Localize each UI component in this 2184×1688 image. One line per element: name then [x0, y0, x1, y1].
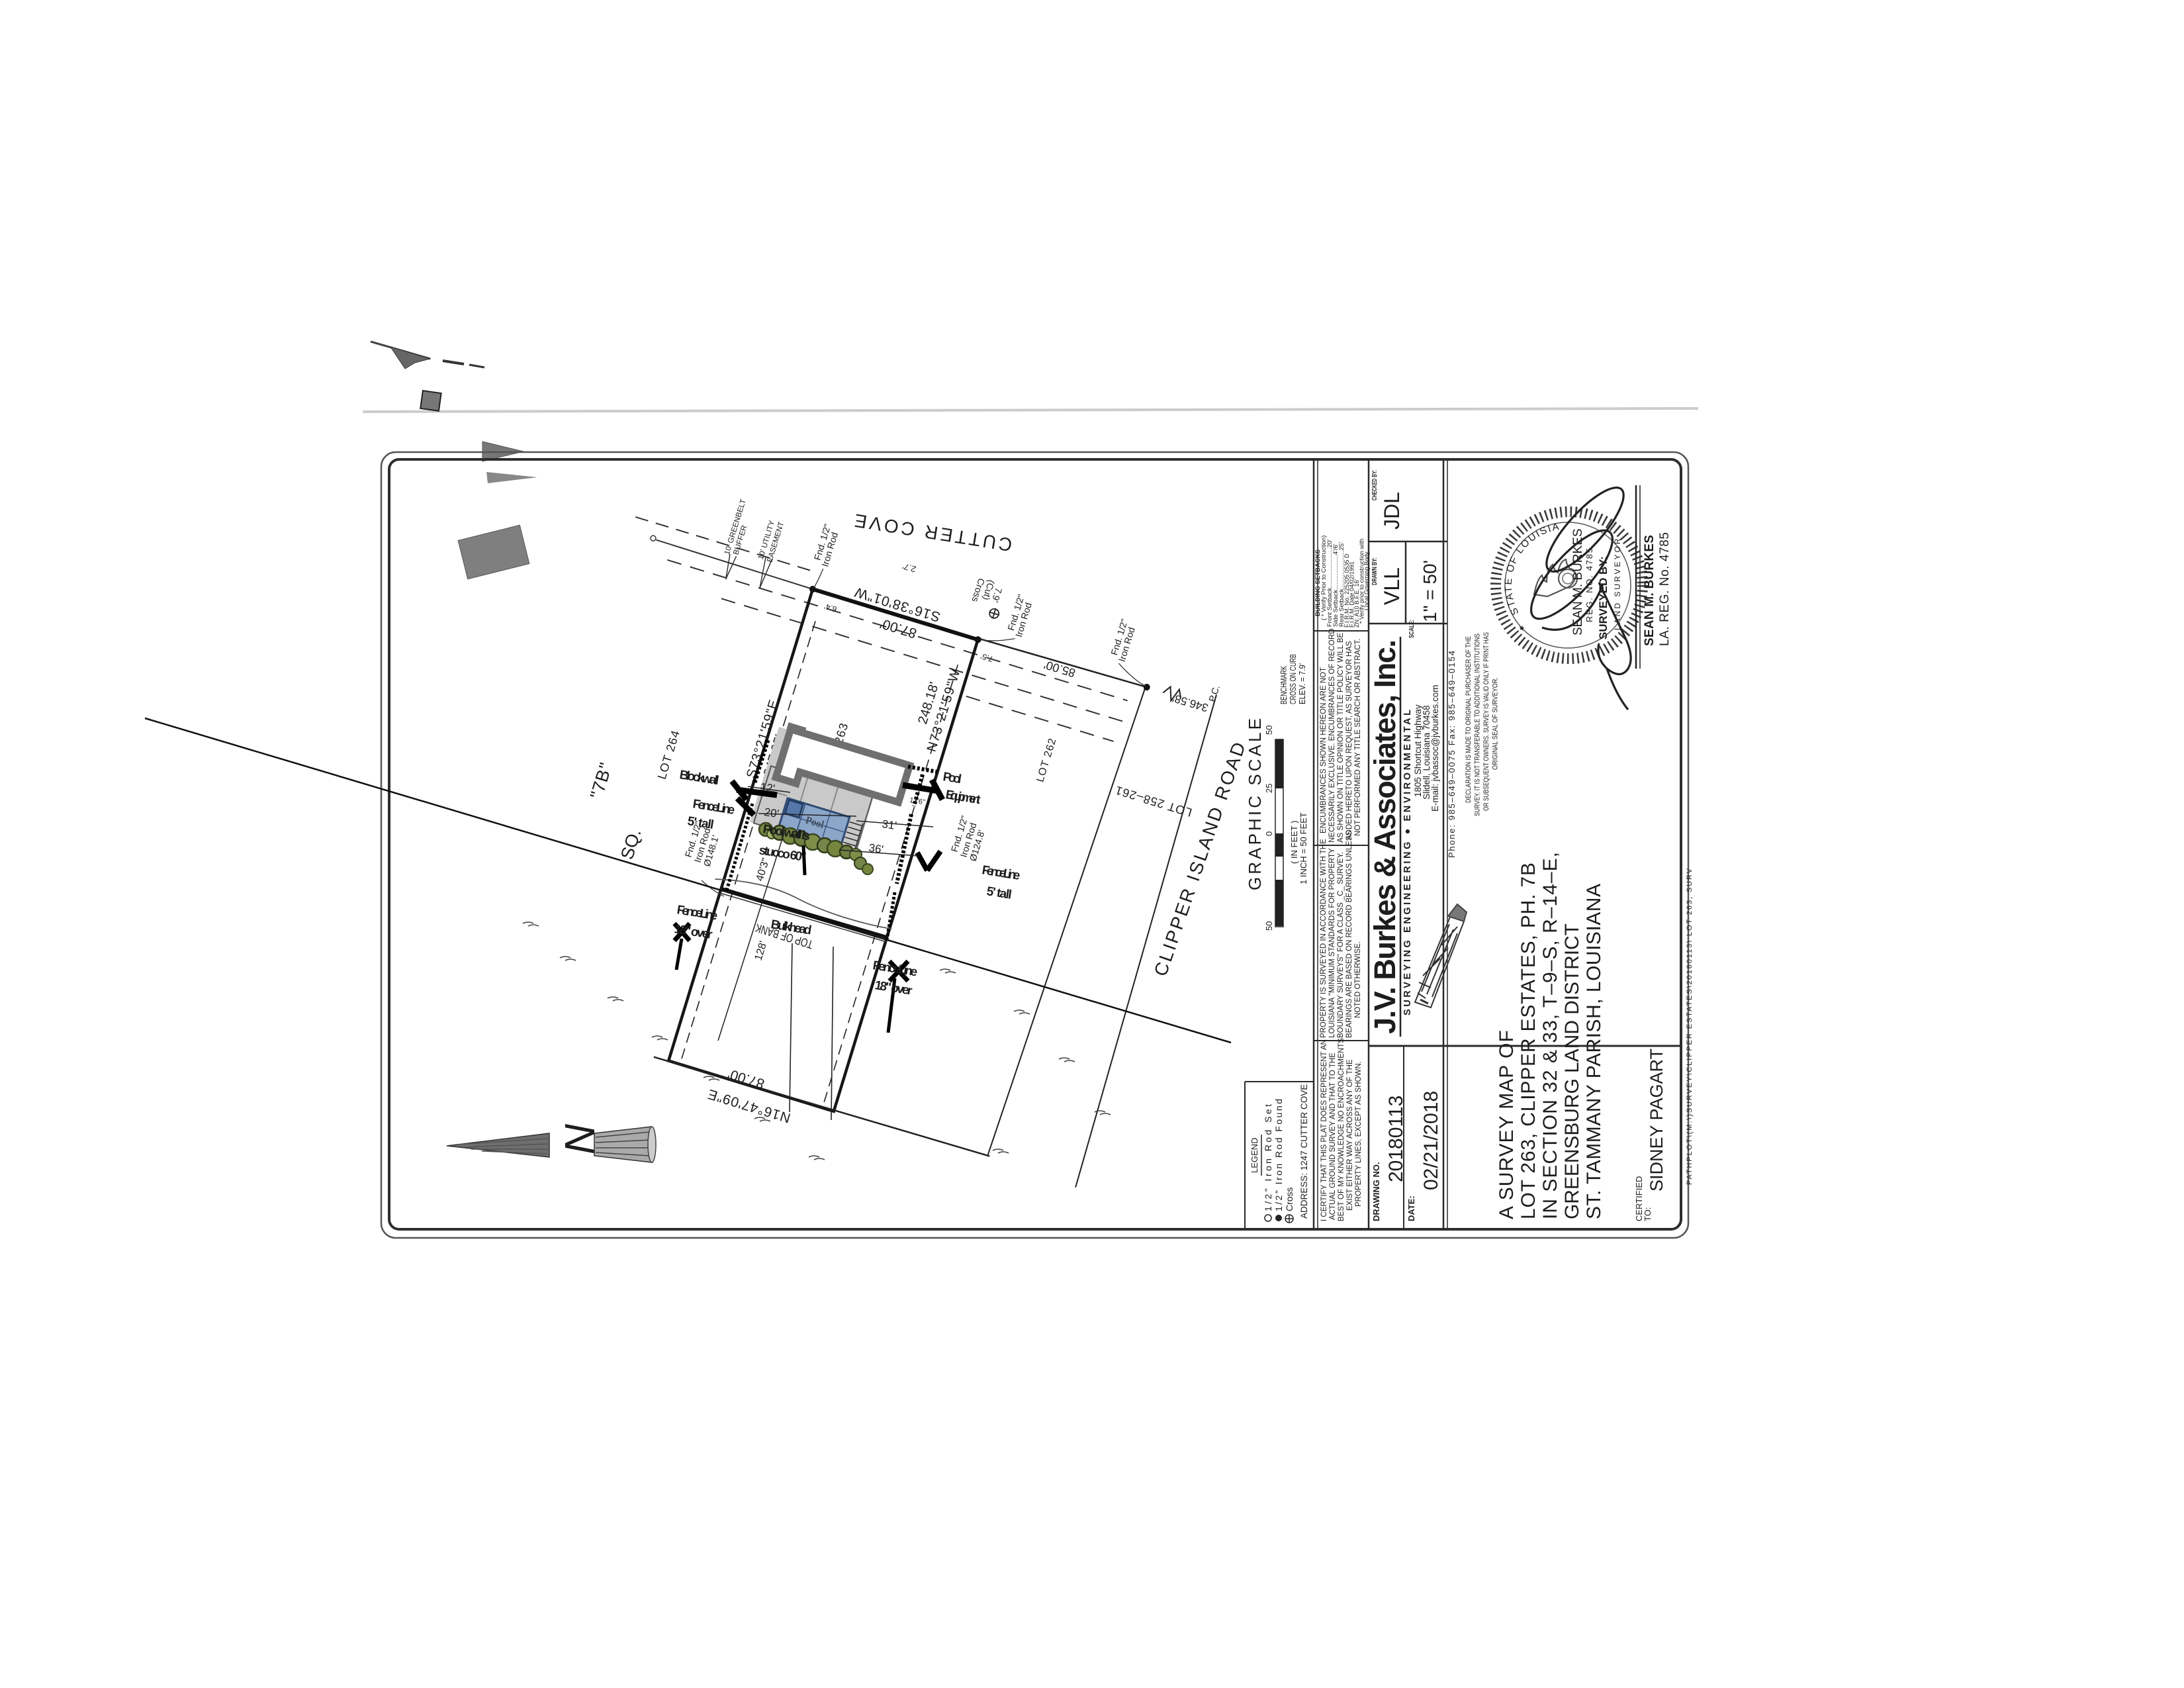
- svg-text:ST. TAMMANY PARISH, LOUISIANA: ST. TAMMANY PARISH, LOUISIANA: [1583, 883, 1605, 1219]
- svg-text:Blockwall: Blockwall: [678, 768, 720, 788]
- svg-text:02/21/2018: 02/21/2018: [1420, 1091, 1442, 1190]
- svg-text:50: 50: [1264, 726, 1274, 735]
- svg-text:N16°47'09"E: N16°47'09"E: [705, 1086, 792, 1125]
- svg-text:BEARINGS ARE BASED ON RECORD B: BEARINGS ARE BASED ON RECORD BEARINGS UN…: [1345, 831, 1353, 1038]
- svg-text:LA. REG. No. 4785: LA. REG. No. 4785: [1658, 532, 1672, 646]
- svg-text:J.V. Burkes & Associates, Inc.: J.V. Burkes & Associates, Inc.: [1368, 639, 1402, 1034]
- svg-text:P.C.: P.C.: [1206, 684, 1222, 703]
- svg-text:FenceLine: FenceLine: [692, 797, 735, 818]
- svg-text:DRAWING NO.: DRAWING NO.: [1371, 1162, 1381, 1221]
- svg-text:( IN FEET ): ( IN FEET ): [1289, 821, 1299, 864]
- svg-text:EXIST EITHER WAY ACROSS ANY OF: EXIST EITHER WAY ACROSS ANY OF THE: [1346, 1059, 1354, 1211]
- svg-text:CLIPPER ISLAND ROAD: CLIPPER ISLAND ROAD: [1150, 737, 1250, 978]
- svg-text:Equipment: Equipment: [944, 788, 981, 807]
- svg-text:ORIGINAL SEAL OF SURVEYOR.: ORIGINAL SEAL OF SURVEYOR.: [1492, 677, 1500, 770]
- svg-text:LOT 264: LOT 264: [655, 728, 683, 780]
- svg-text:20180113: 20180113: [1385, 1096, 1407, 1182]
- svg-text:87.00': 87.00': [726, 1066, 766, 1092]
- svg-text:SURVEY. IT IS NOT TRANSFERABLE: SURVEY. IT IS NOT TRANSFERABLE TO ADDITI…: [1474, 633, 1482, 816]
- svg-text:Cross: Cross: [1284, 1187, 1295, 1211]
- svg-text:A SURVEY MAP OF: A SURVEY MAP OF: [1496, 1029, 1518, 1219]
- svg-text:LOT 262: LOT 262: [1034, 737, 1058, 784]
- svg-text:SIDNEY PAGART: SIDNEY PAGART: [1647, 1049, 1666, 1192]
- svg-text:BENCHMARK: BENCHMARK: [1279, 666, 1289, 704]
- svg-text:12': 12': [759, 780, 776, 795]
- svg-text:18" over: 18" over: [874, 978, 913, 998]
- svg-text:ENCUMBRANCES SHOWN HEREON ARE: ENCUMBRANCES SHOWN HEREON ARE NOT: [1320, 667, 1328, 833]
- svg-text:DECLARATION IS MADE TO ORIGINA: DECLARATION IS MADE TO ORIGINAL PURCHASE…: [1465, 636, 1473, 803]
- svg-text:BOUNDARY SURVEYS" FOR A CLASS: BOUNDARY SURVEYS" FOR A CLASS _C_ SURVEY…: [1337, 852, 1345, 1038]
- svg-text:I CERTIFY THAT THIS PLAT DOES: I CERTIFY THAT THIS PLAT DOES REPRESENT …: [1320, 1039, 1328, 1221]
- svg-text:BEST OF MY KNOWLEDGE NO ENCROA: BEST OF MY KNOWLEDGE NO ENCROACHMENTS: [1338, 1038, 1345, 1221]
- svg-text:1/2" Iron Rod Set: 1/2" Iron Rod Set: [1263, 1104, 1273, 1211]
- svg-text:NECESSARILY EXCLUSIVE. ENCUMB: NECESSARILY EXCLUSIVE. ENCUMBRANCES OF R…: [1328, 628, 1336, 843]
- svg-text:CHECKED BY:: CHECKED BY:: [1371, 470, 1379, 500]
- svg-text:SQ.: SQ.: [617, 827, 645, 862]
- svg-text:128': 128': [753, 940, 770, 962]
- svg-text:FenceLine: FenceLine: [981, 863, 1021, 883]
- svg-text:JDL: JDL: [1380, 492, 1404, 530]
- svg-text:Pool: Pool: [942, 770, 962, 786]
- svg-text:346.58': 346.58': [1171, 692, 1209, 714]
- svg-text:Phone: 985–649–0075 Fax: 98: Phone: 985–649–0075 Fax: 985–649–0154: [1447, 651, 1457, 858]
- svg-text:20': 20': [763, 806, 780, 820]
- svg-text:"7B": "7B": [586, 760, 616, 802]
- svg-text:Local Governing Body.: Local Governing Body.: [1363, 551, 1370, 610]
- svg-text:PROPERTY LINES, EXCEPT AS SHOW: PROPERTY LINES, EXCEPT AS SHOWN.: [1355, 1061, 1363, 1207]
- svg-text:0: 0: [1264, 831, 1274, 836]
- svg-text:ACTUAL GROUND SURVEY AND THAT: ACTUAL GROUND SURVEY AND THAT TO THE: [1329, 1053, 1337, 1220]
- svg-text:11'6": 11'6": [909, 796, 926, 806]
- svg-text:NOTED OTHERWISE.: NOTED OTHERWISE.: [1354, 941, 1362, 1018]
- svg-text:25: 25: [1264, 784, 1274, 793]
- svg-text:TO:: TO:: [1643, 1207, 1653, 1221]
- svg-text:CROSS ON CURB: CROSS ON CURB: [1288, 654, 1298, 704]
- svg-text:50: 50: [1264, 921, 1274, 931]
- svg-text:LOT 258–261: LOT 258–261: [1113, 783, 1193, 819]
- svg-text:31': 31': [881, 818, 897, 832]
- svg-text:NOT PERFORMED ANY TITLE SEARCH: NOT PERFORMED ANY TITLE SEARCH OR ABSTRA…: [1354, 639, 1362, 836]
- svg-text:OR SUBSEQUENT OWNERS. SURVEY: OR SUBSEQUENT OWNERS. SURVEY IS VALID ON…: [1482, 632, 1490, 811]
- svg-text:5' tall: 5' tall: [985, 884, 1013, 902]
- svg-text:GREENSBURG LAND DISTRICT: GREENSBURG LAND DISTRICT: [1561, 923, 1583, 1219]
- svg-text:1 INCH = 50 FEET: 1 INCH = 50 FEET: [1298, 812, 1308, 884]
- svg-text:FenceLine: FenceLine: [676, 903, 719, 923]
- svg-text:PATHPLOT\(M:\)SURVEY\CLIPPER E: PATHPLOT\(M:\)SURVEY\CLIPPER ESTATES\201…: [1686, 868, 1694, 1185]
- svg-text:DRAWN BY:: DRAWN BY:: [1371, 557, 1379, 585]
- svg-text:36': 36': [868, 841, 884, 856]
- svg-text:6.4': 6.4': [823, 602, 838, 614]
- svg-text:LOT 263, CLIPPER ESTATES, PH.: LOT 263, CLIPPER ESTATES, PH. 7B: [1518, 862, 1539, 1219]
- svg-text:GRAPHIC SCALE: GRAPHIC SCALE: [1245, 717, 1265, 890]
- svg-text:2.7': 2.7': [901, 561, 917, 575]
- svg-text:SCALE:: SCALE:: [1408, 620, 1416, 638]
- svg-text:SURVEYED BY:: SURVEYED BY:: [1597, 556, 1610, 639]
- svg-text:1/2" Iron Rod Found: 1/2" Iron Rod Found: [1273, 1099, 1284, 1211]
- svg-text:1" = 50': 1" = 50': [1420, 560, 1440, 622]
- svg-text:18" over: 18" over: [673, 922, 713, 942]
- svg-text:E-mail: jvbassoc@jvburkes.com: E-mail: jvbassoc@jvburkes.com: [1430, 684, 1440, 812]
- svg-text:PROPERTY IS SURVEYED IN ACCORD: PROPERTY IS SURVEYED IN ACCORDANCE WITH …: [1320, 839, 1328, 1038]
- svg-text:AS SHOWN ON TITLE OPINION OR T: AS SHOWN ON TITLE OPINION OR TITLE POLIC…: [1337, 632, 1345, 843]
- svg-text:ADDRESS: 1247 CUTTER COVE: ADDRESS: 1247 CUTTER COVE: [1299, 1084, 1309, 1219]
- svg-text:SEAN M. BURKES: SEAN M. BURKES: [1643, 535, 1657, 646]
- svg-text:SURVEYING ENGINEERING: SURVEYING ENGINEERING ● ENVIRONMENTAL: [1402, 710, 1413, 1015]
- svg-text:LEGEND: LEGEND: [1250, 1138, 1259, 1173]
- svg-text:ELEV. = 7.9': ELEV. = 7.9': [1297, 663, 1307, 704]
- svg-text:7.5': 7.5': [979, 651, 994, 664]
- svg-text:IN SECTION 32 & 33, T–9–S, R–1: IN SECTION 32 & 33, T–9–S, R–14–E,: [1539, 851, 1561, 1219]
- svg-text:VLL: VLL: [1380, 567, 1404, 605]
- svg-text:ADDED HERETO UPON REQUEST, AS: ADDED HERETO UPON REQUEST, AS SURVEYOR H…: [1345, 641, 1353, 840]
- svg-text:CUTTER COVE: CUTTER COVE: [850, 510, 1014, 555]
- svg-text:DATE:: DATE:: [1406, 1196, 1416, 1221]
- svg-text:LOUISIANA "MINIMUM STANDARDS F: LOUISIANA "MINIMUM STANDARDS FOR PROPERT…: [1328, 848, 1336, 1038]
